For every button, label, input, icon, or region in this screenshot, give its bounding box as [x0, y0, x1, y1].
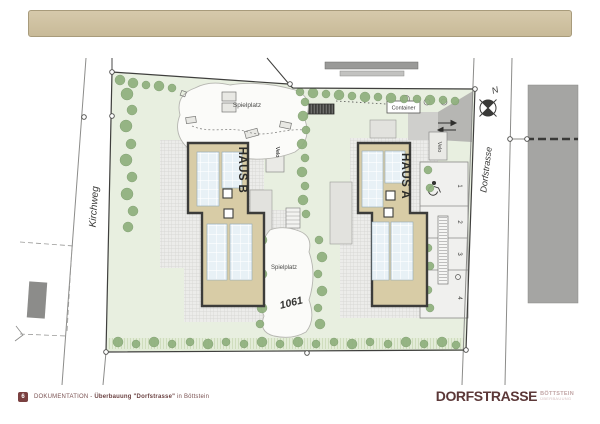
playground-center [259, 228, 313, 338]
haus-a-skylight [384, 208, 393, 217]
haus-a-label: HAUS A [399, 153, 411, 199]
doc-title: DOKUMENTATION - Überbauung "Dorfstrasse"… [34, 394, 209, 400]
brand-name: DORFSTRASSE [436, 388, 537, 404]
doc-title-prefix: DOKUMENTATION - [34, 394, 94, 400]
haus-b-skylight [224, 209, 233, 218]
street-label-kirchweg: Kirchweg [88, 185, 102, 227]
container-label: Container [392, 106, 416, 112]
west-neighbor-building [27, 281, 47, 318]
doc-title-bold: Überbauung "Dorfstrasse" [94, 394, 175, 400]
west-neighbor-parcel [20, 242, 74, 336]
playground-center-label: Spielplatz [271, 265, 297, 271]
playground-north-label: Spielplatz [233, 102, 261, 109]
dorfstrasse-road [462, 58, 528, 385]
north-arrow-icon [480, 100, 497, 117]
doc-title-suffix: in Böttstein [175, 394, 209, 400]
bike-shelter-roof [306, 104, 334, 114]
brand-subline: ÜBERBAUUNG [540, 397, 574, 401]
street-label-dorfstrasse: Dorfstrasse [478, 146, 494, 193]
haus-b-skylight [223, 189, 232, 198]
north-label: N [490, 84, 500, 96]
ramp-treads [439, 217, 447, 283]
east-neighbor-building [528, 85, 578, 303]
site-plan: Kirchweg Dorfstrasse N HAUS B HAUS A Spi… [0, 50, 600, 386]
page-number-badge: 6 [18, 392, 28, 402]
stairs [286, 208, 300, 228]
north-neighbor-building [325, 62, 418, 76]
footer: 6 DOKUMENTATION - Überbauung "Dorfstrass… [0, 386, 600, 420]
haus-b-label: HAUS B [236, 147, 248, 194]
brand-logo: DORFSTRASSE BÖTTSTEIN ÜBERBAUUNG [436, 388, 574, 404]
footer-doc-info: 6 DOKUMENTATION - Überbauung "Dorfstrass… [18, 392, 209, 402]
header-color-bar [28, 10, 572, 37]
boundary-leader-line [267, 58, 289, 84]
haus-a-skylight [386, 191, 395, 200]
velo-a-label: Velo [436, 142, 442, 153]
brand-location-block: BÖTTSTEIN ÜBERBAUUNG [540, 388, 574, 401]
survey-marker-symbol [15, 326, 23, 341]
velo-b-label: Velo [274, 147, 280, 158]
